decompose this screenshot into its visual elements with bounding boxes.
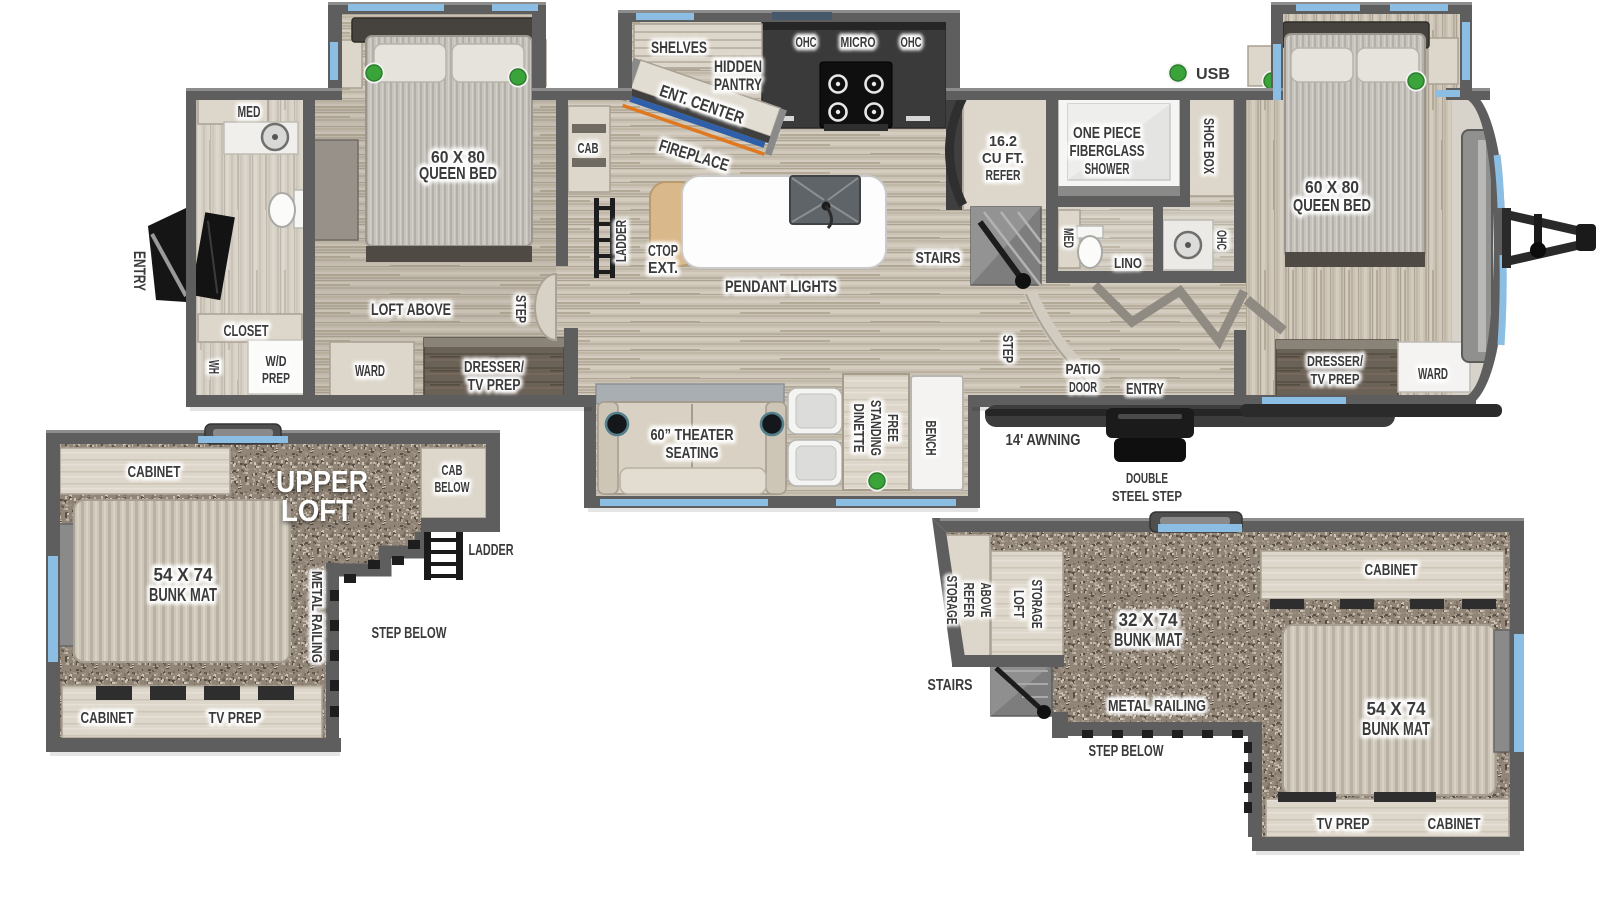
svg-text:BUNK MAT: BUNK MAT (1114, 630, 1182, 650)
svg-text:DOUBLE: DOUBLE (1126, 470, 1168, 487)
svg-text:BENCH: BENCH (922, 421, 939, 456)
svg-text:TV PREP: TV PREP (1317, 816, 1370, 833)
svg-text:QUEEN BED: QUEEN BED (419, 163, 497, 183)
svg-text:CU FT.: CU FT. (982, 150, 1024, 167)
svg-text:STEP BELOW: STEP BELOW (1089, 743, 1165, 760)
svg-text:QUEEN BED: QUEEN BED (1293, 195, 1371, 215)
svg-text:OHC: OHC (901, 34, 922, 51)
svg-text:LADDER: LADDER (469, 542, 514, 559)
svg-text:ONE PIECE: ONE PIECE (1073, 125, 1141, 142)
svg-text:MED: MED (238, 104, 261, 121)
svg-text:TV PREP: TV PREP (209, 710, 262, 727)
svg-text:54 X 74: 54 X 74 (1367, 699, 1426, 719)
svg-text:WARD: WARD (355, 363, 385, 380)
svg-text:FIBERGLASS: FIBERGLASS (1070, 143, 1145, 160)
svg-text:LOFT: LOFT (281, 493, 353, 528)
svg-text:PATIO: PATIO (1066, 361, 1101, 378)
svg-text:EXT.: EXT. (648, 260, 678, 277)
svg-text:DRESSER/: DRESSER/ (464, 359, 524, 376)
svg-text:REFER: REFER (986, 167, 1021, 184)
svg-text:WH: WH (205, 360, 222, 374)
svg-text:BUNK MAT: BUNK MAT (149, 585, 217, 605)
svg-text:USB: USB (1196, 66, 1230, 83)
svg-text:ENTRY: ENTRY (130, 251, 149, 291)
svg-text:14' AWNING: 14' AWNING (1006, 432, 1081, 449)
svg-text:OHC: OHC (796, 34, 817, 51)
svg-text:MED: MED (1061, 228, 1077, 248)
svg-text:CLOSET: CLOSET (224, 323, 269, 340)
svg-text:32 X 74: 32 X 74 (1119, 610, 1178, 630)
svg-text:STORAGE: STORAGE (943, 576, 960, 625)
svg-text:STEP: STEP (512, 295, 529, 323)
svg-text:TV PREP: TV PREP (1311, 371, 1360, 388)
svg-text:CABINET: CABINET (128, 464, 181, 481)
svg-text:CAB: CAB (578, 140, 599, 157)
svg-text:ABOVE: ABOVE (977, 583, 994, 618)
svg-text:PREP: PREP (262, 370, 290, 387)
svg-text:STEP BELOW: STEP BELOW (372, 625, 448, 642)
svg-text:SHELVES: SHELVES (651, 38, 707, 57)
svg-text:STAIRS: STAIRS (928, 677, 973, 694)
svg-text:BELOW: BELOW (435, 479, 471, 496)
svg-text:DINETTE: DINETTE (850, 404, 867, 453)
svg-text:ENTRY: ENTRY (1126, 381, 1164, 398)
svg-text:LOFT: LOFT (1010, 590, 1027, 618)
svg-text:CABINET: CABINET (1428, 816, 1481, 833)
svg-text:PENDANT LIGHTS: PENDANT LIGHTS (725, 277, 837, 296)
svg-text:DRESSER/: DRESSER/ (1307, 353, 1364, 370)
svg-text:60 X 80: 60 X 80 (1305, 177, 1359, 197)
svg-text:SHOE BOX: SHOE BOX (1200, 118, 1217, 174)
svg-text:PANTRY: PANTRY (714, 75, 762, 94)
svg-text:CAB: CAB (442, 462, 463, 479)
svg-text:REFER: REFER (960, 583, 977, 618)
svg-text:FREE: FREE (884, 414, 901, 442)
svg-text:SEATING: SEATING (666, 445, 719, 462)
svg-text:CABINET: CABINET (81, 710, 134, 727)
svg-text:54 X 74: 54 X 74 (154, 565, 213, 585)
svg-text:LADDER: LADDER (613, 220, 630, 262)
svg-text:W/D: W/D (266, 353, 287, 370)
svg-text:DOOR: DOOR (1069, 379, 1097, 396)
svg-text:METAL RAILING: METAL RAILING (1108, 698, 1206, 715)
svg-text:TV PREP: TV PREP (468, 377, 521, 394)
svg-text:OHC: OHC (1214, 230, 1230, 250)
svg-text:HIDDEN: HIDDEN (714, 57, 762, 76)
svg-text:LINO: LINO (1114, 255, 1142, 272)
svg-text:SHOWER: SHOWER (1085, 161, 1130, 178)
svg-text:METAL RAILING: METAL RAILING (308, 571, 325, 663)
svg-text:60” THEATER: 60” THEATER (651, 427, 734, 444)
svg-text:16.2: 16.2 (989, 133, 1017, 150)
svg-text:BUNK MAT: BUNK MAT (1362, 719, 1430, 739)
svg-text:STAIRS: STAIRS (916, 250, 961, 267)
svg-text:STEEL STEP: STEEL STEP (1112, 488, 1182, 505)
svg-text:WARD: WARD (1418, 366, 1448, 383)
svg-text:STORAGE: STORAGE (1028, 580, 1045, 629)
svg-text:CTOP: CTOP (648, 243, 678, 260)
svg-text:CABINET: CABINET (1365, 562, 1418, 579)
svg-text:MICRO: MICRO (841, 34, 876, 51)
svg-text:LOFT ABOVE: LOFT ABOVE (371, 300, 451, 319)
svg-text:STEP: STEP (999, 335, 1016, 363)
svg-text:STANDING: STANDING (867, 400, 884, 456)
